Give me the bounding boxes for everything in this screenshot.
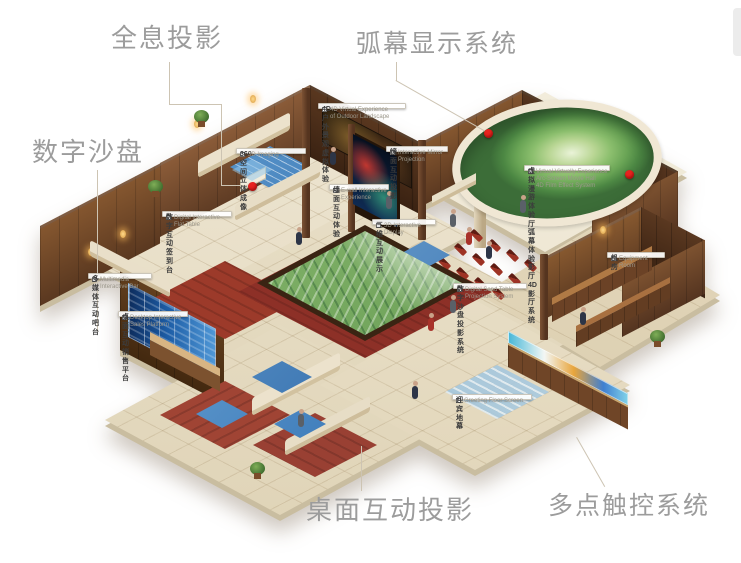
callout-mirror-projection: 镜面互动投影 Interactive Mirror Projection [386,146,448,152]
callout-4d-outdoor-experience: 4D 户外景观虚拟体验 4D Virtual Experience of Out… [318,103,406,109]
wall-lamp [120,230,126,238]
callout-equipment-room: 机房 Equipment Room [607,252,665,258]
person-figure [296,232,302,245]
person-figure [520,200,526,213]
callout-360-imaging: 360 空间立体成像 3D Imaging [236,148,306,154]
potted-plant [148,180,163,193]
marker-dot [484,129,493,138]
callout-en: Desktop Interactive Sales Platform [122,315,181,329]
label-multitouch-system: 多点触控系统 [548,486,710,522]
edge-artifact [733,8,741,56]
wall-lamp [250,95,256,103]
potted-plant [250,462,265,475]
callout-desktop-sales-platform: 桌面互动销售平台 Desktop Interactive Sales Platf… [118,311,188,317]
person-figure [428,318,434,331]
callout-en: 3D Interactive Display [376,223,435,237]
callout-en: Digital Sand Table Projection System [457,287,513,301]
person-figure [450,300,456,313]
callout-en: Equipment Room [611,256,664,270]
potted-plant [194,110,209,123]
label-arc-screen-system: 弧幕显示系统 [356,24,518,60]
person-figure [412,386,418,399]
callout-zh: 360 空间立体成像 [240,151,252,212]
exhibition-hall-rendering: 4D 户外景观虚拟体验 4D Virtual Experience of Out… [0,0,741,563]
marker-dot [625,170,634,179]
person-figure [466,232,472,245]
callout-en: E-wall Interactive Experience [333,188,387,202]
wall-lamp [600,226,606,234]
leader-line [169,104,222,105]
callout-sand-table-projection: 数字沙盘投影系统 Digital Sand Table Projection S… [453,283,527,289]
leader-line [221,104,222,186]
label-holographic-projection: 全息投影 [111,18,223,55]
callout-zh: 虚拟漫游体验厅 弧幕体验影厅 4D 影厅系统 [528,168,537,326]
callout-en: 4D Virtual Experience of Outdoor Landsca… [322,107,389,121]
callout-en: Greeting Floor Screen [456,398,523,405]
callout-virtual-roaming-hall: 虚拟漫游体验厅 弧幕体验影厅 4D 影厅系统 Virtual Virtually… [524,165,610,171]
person-figure [298,414,304,427]
leader-line [361,446,362,491]
callout-wall-interactive: 墙面互动体验 E-wall Interactive Experience [329,184,389,190]
callout-multimedia-bar: 多媒体互动吧台 Multimedia Interactive Bar [88,273,152,279]
callout-en: Virtual Virtually Experience Arc-Screen … [528,169,607,191]
callout-3d-display: 三维互动展示 3D Interactive Display [372,219,436,225]
pillar [302,88,310,238]
label-desktop-interactive-projection: 桌面互动投影 [306,490,474,527]
callout-en: Multimedia Interactive Bar [92,277,139,291]
callout-greeting-floor-screen: 迎宾地幕 Greeting Floor Screen [452,394,532,400]
callout-en: Digital Interactive Flat Table [166,215,220,229]
leader-line [396,62,397,81]
person-figure [580,312,586,325]
callout-en: Interactive Mirror Projection [390,150,443,164]
person-figure [450,214,456,227]
callout-en: 3D Imaging [240,152,279,159]
label-digital-sand-table: 数字沙盘 [32,132,144,169]
potted-plant [650,330,665,343]
pillar [540,254,548,340]
leader-line [169,62,170,104]
person-figure [486,246,492,259]
callout-digital-sign-table: 数字互动签到台 Digital Interactive Flat Table [162,211,232,217]
